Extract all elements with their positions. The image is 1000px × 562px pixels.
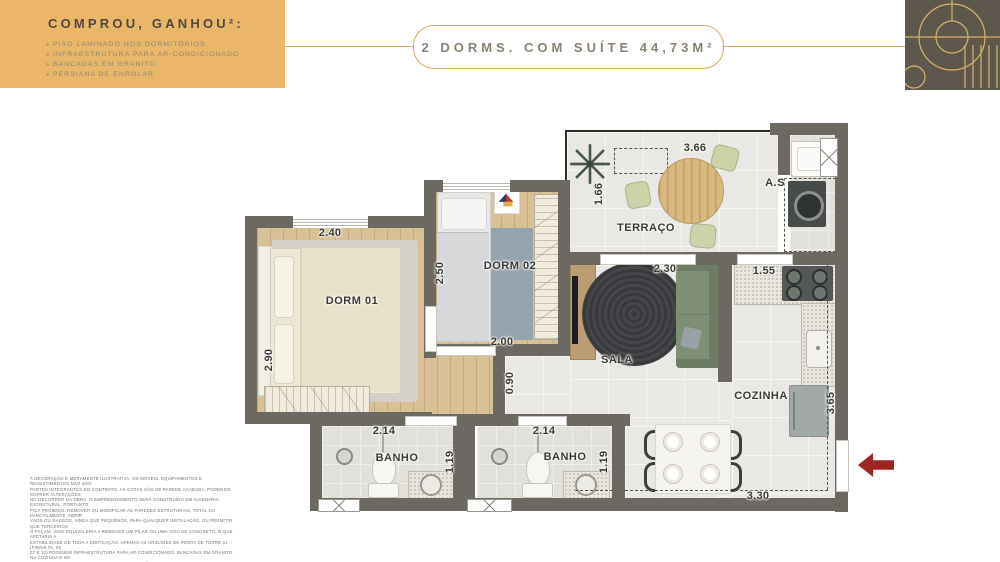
fridge <box>789 385 829 437</box>
bench-outline <box>614 148 668 174</box>
art-deco-logo-icon <box>905 0 1000 90</box>
dim-cozinha-width: 1.55 <box>753 265 776 277</box>
burner-icon <box>812 269 828 285</box>
plate-icon <box>663 464 683 484</box>
plant-icon <box>568 142 612 186</box>
entry-arrow-icon <box>858 453 894 477</box>
basin-icon <box>575 474 597 496</box>
bullet-dot-icon <box>46 73 49 76</box>
wall <box>245 216 257 424</box>
dim-dorm01-width: 2.40 <box>319 227 342 239</box>
promo-title: COMPROU, GANHOU²: <box>48 16 244 31</box>
disclaimer-line: A DECORAÇÃO É MERAMENTE ILUSTRATIVA. OS … <box>30 476 240 487</box>
basin-icon <box>420 474 442 496</box>
dim-dorm01-height: 2.90 <box>263 349 275 372</box>
promo-item: INFRAESTRUTURA PARA AR-CONDICIONADO <box>46 51 239 58</box>
shaft-x-icon <box>467 499 512 512</box>
promo-item: BANCADAS EM GRANITO <box>46 61 239 68</box>
burner-icon <box>786 269 802 285</box>
dim-banho2-height: 1.19 <box>598 451 610 474</box>
bullet-dot-icon <box>46 63 49 66</box>
sofa-armrest <box>676 359 718 368</box>
pillow <box>274 256 294 318</box>
washer-door-icon <box>794 191 824 221</box>
dim-terraco-width: 3.66 <box>684 142 707 154</box>
tv <box>572 276 578 344</box>
stove <box>782 266 833 301</box>
plan-title: 2 DORMS. COM SUÍTE 44,73M² <box>422 40 716 55</box>
dim-cozinha-height: 3.65 <box>825 392 837 415</box>
wall <box>453 414 475 511</box>
toilet-tank <box>522 483 553 498</box>
promo-box: COMPROU, GANHOU²: PISO LAMINADO NOS DORM… <box>0 0 285 88</box>
wardrobe-dorm01 <box>264 386 370 414</box>
throw-pillow <box>680 326 702 349</box>
burner-icon <box>786 285 802 301</box>
room-label-as: A.S <box>765 177 785 189</box>
dim-line <box>827 265 829 490</box>
flyer-page: COMPROU, GANHOU²: PISO LAMINADO NOS DORM… <box>0 0 1000 562</box>
promo-list: PISO LAMINADO NOS DORMITÓRIOS INFRAESTRU… <box>46 38 239 78</box>
sofa <box>676 262 718 368</box>
door-banho1 <box>405 416 457 426</box>
dim-banho1-height: 1.19 <box>444 451 456 474</box>
colorful-logo-icon <box>495 189 517 211</box>
brand-logo <box>905 0 1000 90</box>
terrace-table <box>658 158 724 224</box>
room-label-sala: SALA <box>601 354 633 366</box>
dim-dorm02-height: 2.50 <box>434 262 446 285</box>
room-label-dorm01: DORM 01 <box>326 295 378 307</box>
wall <box>558 180 570 356</box>
disclaimer-line: VÃOS OU RASGOS, AINDA QUE PEQUENOS, PARA… <box>30 518 240 529</box>
window <box>443 180 510 192</box>
plate-icon <box>700 432 720 452</box>
bullet-dot-icon <box>46 53 49 56</box>
sofa-back <box>709 262 718 368</box>
dim-sala-width: 2.30 <box>654 263 677 275</box>
entry-door-opening <box>836 440 849 492</box>
dim-dining-width: 3.30 <box>747 490 770 502</box>
faucet-icon <box>816 346 820 350</box>
dim-terraco-height: 1.66 <box>593 183 605 206</box>
disclaimer-line: ESTABILIDADE DE TODA A EDIFICAÇÃO. APENA… <box>30 540 240 551</box>
burner-icon <box>812 285 828 301</box>
pillow <box>441 198 487 230</box>
plate-icon <box>700 464 720 484</box>
wall <box>718 252 732 382</box>
shaft-x-icon <box>820 138 838 177</box>
gold-rule-right <box>722 46 905 47</box>
dim-banho1-width: 2.14 <box>373 425 396 437</box>
sliding-door-terraco <box>600 254 696 265</box>
promo-item: PISO LAMINADO NOS DORMITÓRIOS <box>46 41 239 48</box>
door-as <box>737 254 793 265</box>
disclaimer-line: PARTES INTEGRANTES DO CONTRATO. AS COTAS… <box>30 487 240 498</box>
plan-title-pill: 2 DORMS. COM SUÍTE 44,73M² <box>413 25 724 69</box>
room-label-terraco: TERRAÇO <box>617 222 675 234</box>
wall <box>778 131 790 175</box>
promo-item-label: PISO LAMINADO NOS DORMITÓRIOS <box>53 41 206 48</box>
dim-banho2-width: 2.14 <box>533 425 556 437</box>
rug-sala <box>582 262 686 366</box>
wall <box>310 414 322 511</box>
promo-item-label: PERSIANA DE ENROLAR <box>53 71 154 78</box>
rug-dorm02 <box>487 228 533 340</box>
shaft-x-icon <box>318 499 360 512</box>
plant <box>568 142 612 186</box>
promo-item-label: INFRAESTRUTURA PARA AR-CONDICIONADO <box>53 51 239 58</box>
terrace-edge <box>565 130 777 132</box>
fridge-handle <box>793 392 795 430</box>
toilet-tank <box>368 483 399 498</box>
cushion-seam <box>678 314 710 315</box>
blanket-dorm01 <box>300 248 400 392</box>
room-label-cozinha: COZINHA <box>734 390 788 402</box>
disclaimer-line: NO DECORRER DA OBRA. O EMPREENDIMENTO SE… <box>30 497 240 508</box>
shower-head-icon <box>336 448 353 465</box>
floor-hall-wood <box>424 356 493 414</box>
pillow <box>274 324 294 384</box>
room-label-dorm02: DORM 02 <box>484 260 536 272</box>
wardrobe-dorm02 <box>534 194 560 340</box>
dim-hall-width: 0.90 <box>504 372 516 395</box>
promo-item: PERSIANA DE ENROLAR <box>46 71 239 78</box>
promo-item-label: BANCADAS EM GRANITO <box>53 61 156 68</box>
disclaimer-line: FICA PROIBIDO: REMOVER OU MODIFICAR AS P… <box>30 508 240 519</box>
gold-rule-left <box>285 46 413 47</box>
wall <box>612 414 625 511</box>
disclaimer: A DECORAÇÃO É MERAMENTE ILUSTRATIVA. OS … <box>30 476 240 562</box>
blanket-dorm02 <box>437 232 489 341</box>
washing-machine <box>788 181 826 227</box>
bullet-dot-icon <box>46 43 49 46</box>
terrace-chair <box>689 223 717 249</box>
disclaimer-line: O FAÇAM. ISSO EQUIVALERIA A REMOVER UM P… <box>30 529 240 540</box>
terrace-chair <box>624 180 652 210</box>
room-label-banho2: BANHO <box>544 451 587 463</box>
door-dorm02 <box>436 346 496 356</box>
room-label-banho1: BANHO <box>376 452 419 464</box>
disclaimer-line: 07 E 12) POSSUEM INFRAESTRUTURA PARA AR-… <box>30 550 240 561</box>
dim-dorm02-width: 2.00 <box>491 336 514 348</box>
plate-icon <box>663 432 683 452</box>
shower-head-icon <box>491 448 508 465</box>
